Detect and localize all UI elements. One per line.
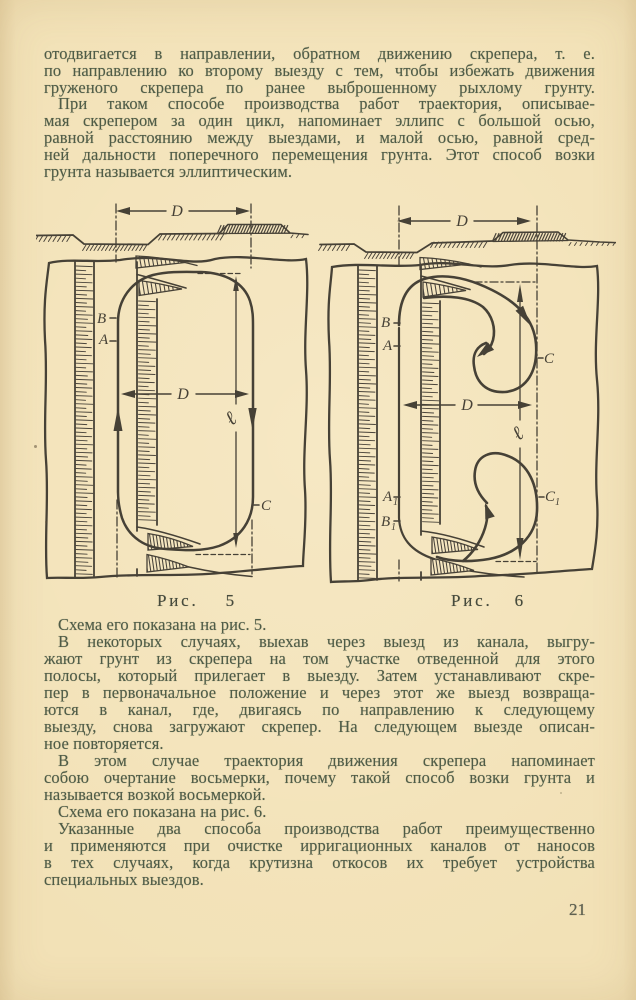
svg-text:ℓ: ℓ: [508, 422, 529, 445]
svg-text:В: В: [381, 315, 390, 331]
svg-text:А: А: [98, 332, 109, 348]
svg-text:С: С: [261, 498, 272, 514]
svg-text:1: 1: [555, 497, 560, 508]
svg-text:В: В: [97, 311, 106, 327]
svg-text:1: 1: [391, 522, 396, 533]
svg-text:D: D: [460, 397, 473, 414]
svg-text:А: А: [382, 338, 393, 354]
svg-text:D: D: [170, 203, 183, 220]
svg-text:ℓ: ℓ: [221, 407, 242, 430]
svg-text:D: D: [455, 213, 468, 230]
svg-text:А: А: [382, 489, 393, 505]
svg-text:1: 1: [393, 497, 398, 508]
svg-text:D: D: [176, 386, 189, 403]
svg-text:В: В: [381, 514, 390, 530]
svg-text:С: С: [544, 351, 555, 367]
